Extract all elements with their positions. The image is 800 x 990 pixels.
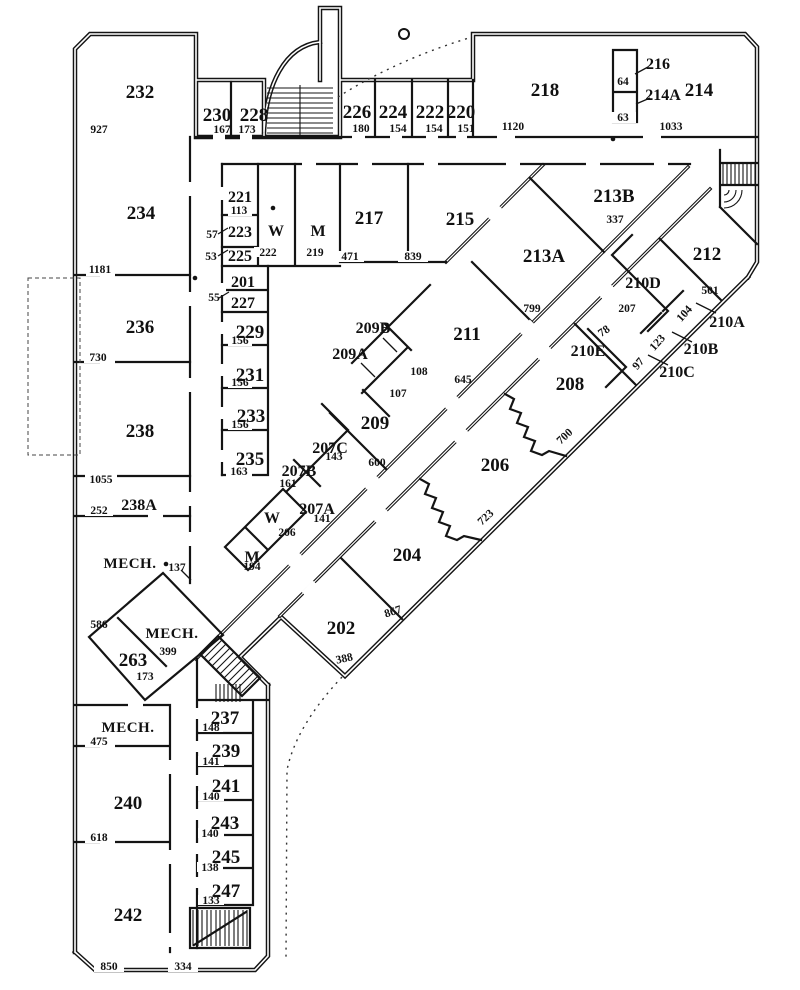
dim-label-645: 645 — [454, 374, 472, 386]
floor-plan-drawing: 232 230 228 226 224 222 220 218 216 214A… — [0, 0, 800, 990]
room-label-230: 230 — [203, 105, 232, 126]
room-label-210D: 210D — [625, 275, 661, 292]
outer-walls — [75, 8, 757, 970]
dim-label-207: 207 — [618, 303, 636, 315]
dotted-walk-bottom — [286, 677, 342, 958]
room-label-mech-3: MECH. — [102, 720, 155, 736]
dim-label-388: 388 — [335, 651, 355, 666]
room-label-242: 242 — [114, 905, 143, 926]
room-label-238: 238 — [126, 421, 155, 442]
room-label-234: 234 — [127, 203, 156, 224]
room-label-201: 201 — [231, 274, 255, 291]
dim-label-156c: 156 — [231, 419, 249, 431]
dim-label-1033: 1033 — [660, 121, 683, 133]
room-label-210E: 210E — [571, 343, 606, 360]
door-openings — [84, 112, 668, 972]
dim-label-108: 108 — [410, 366, 428, 378]
room-label-220: 220 — [447, 102, 476, 123]
zigzag-wall-206-204 — [420, 479, 481, 540]
dim-label-927: 927 — [90, 124, 108, 136]
dim-label-1120: 1120 — [502, 121, 525, 133]
stair-top-center — [267, 85, 333, 135]
room-label-213A: 213A — [523, 246, 566, 267]
floor-plan-page: 232 230 228 226 224 222 220 218 216 214A… — [0, 0, 800, 990]
dim-label-1055: 1055 — [90, 474, 113, 486]
dim-label-180: 180 — [352, 123, 370, 135]
room-label-m-top: M — [310, 223, 325, 240]
dim-label-107: 107 — [389, 388, 407, 400]
dim-label-156a: 156 — [231, 335, 249, 347]
dotted-walk-top — [338, 37, 472, 97]
room-label-210C: 210C — [659, 364, 695, 381]
dim-label-163: 163 — [230, 466, 248, 478]
room-label-263: 263 — [119, 650, 148, 671]
room-label-w-mid: W — [264, 510, 280, 527]
room-label-223: 223 — [228, 224, 252, 241]
dim-label-194: 194 — [243, 561, 261, 573]
roof-drain-circle — [399, 29, 409, 39]
room-label-208: 208 — [556, 374, 585, 395]
room-label-224: 224 — [379, 102, 408, 123]
dim-label-140b: 140 — [201, 828, 219, 840]
room-label-232: 232 — [126, 82, 155, 103]
column-dot — [611, 137, 616, 142]
column-dot — [193, 276, 198, 281]
dim-label-123: 123 — [648, 332, 669, 353]
dim-label-97: 97 — [630, 356, 647, 373]
dim-label-723: 723 — [476, 507, 497, 528]
dim-label-64: 64 — [617, 76, 629, 88]
dim-label-78: 78 — [596, 323, 613, 340]
dim-label-141b: 141 — [313, 513, 331, 525]
dim-label-138: 138 — [201, 862, 219, 874]
dimension-labels: 927 167 173 180 154 154 151 1120 64 63 1… — [89, 76, 719, 973]
room-label-227: 227 — [231, 295, 255, 312]
dim-label-140a: 140 — [202, 791, 220, 803]
dim-label-700: 700 — [555, 426, 576, 447]
dim-label-206: 206 — [278, 527, 296, 539]
dim-label-156b: 156 — [231, 377, 249, 389]
room-label-mech-1: MECH. — [104, 556, 157, 572]
dim-label-53: 53 — [205, 251, 217, 263]
dim-label-600: 600 — [368, 457, 386, 469]
dim-label-219: 219 — [306, 247, 324, 259]
room-label-215: 215 — [446, 209, 475, 230]
room-label-210B: 210B — [684, 341, 719, 358]
dim-label-337: 337 — [606, 214, 624, 226]
room-label-225: 225 — [228, 248, 252, 265]
dim-label-173a: 173 — [238, 124, 256, 136]
room-label-204: 204 — [393, 545, 422, 566]
dim-label-167: 167 — [213, 124, 231, 136]
room-label-212: 212 — [693, 244, 722, 265]
dim-label-839: 839 — [404, 251, 422, 263]
dim-label-730: 730 — [89, 352, 107, 364]
column-dot — [271, 206, 276, 211]
dim-label-154b: 154 — [425, 123, 443, 135]
dim-label-222: 222 — [259, 247, 277, 259]
room-label-221: 221 — [228, 189, 252, 206]
dim-label-501: 501 — [701, 285, 719, 297]
dim-label-334: 334 — [174, 961, 192, 973]
room-label-206: 206 — [481, 455, 510, 476]
dim-label-55: 55 — [208, 292, 220, 304]
room-label-209A: 209A — [332, 346, 368, 363]
room-label-214A: 214A — [645, 87, 681, 104]
zigzag-wall-208-206 — [505, 394, 566, 456]
dashed-canopy — [28, 278, 80, 455]
room-label-mech-2: MECH. — [146, 626, 199, 642]
dim-label-57: 57 — [206, 229, 218, 241]
room-label-216: 216 — [646, 56, 670, 73]
room-label-213B: 213B — [593, 186, 635, 207]
room-label-209B: 209B — [356, 320, 391, 337]
dim-label-113: 113 — [231, 205, 248, 217]
dim-label-161: 161 — [279, 478, 297, 490]
dim-label-154a: 154 — [389, 123, 407, 135]
room-label-226: 226 — [343, 102, 372, 123]
dim-label-148: 148 — [202, 722, 220, 734]
dim-label-133: 133 — [202, 895, 220, 907]
dim-label-151: 151 — [457, 123, 475, 135]
interior-walls — [75, 50, 757, 952]
dim-label-63: 63 — [617, 112, 629, 124]
dim-label-141a: 141 — [202, 756, 220, 768]
dim-label-137: 137 — [168, 562, 186, 574]
dim-label-1181: 1181 — [89, 264, 112, 276]
dim-label-850: 850 — [100, 961, 118, 973]
dim-label-471: 471 — [341, 251, 359, 263]
dim-label-475: 475 — [90, 736, 108, 748]
room-label-209: 209 — [361, 413, 390, 434]
dim-label-104: 104 — [675, 303, 696, 324]
dim-label-618: 618 — [90, 832, 108, 844]
room-label-238A: 238A — [121, 497, 157, 514]
room-label-218: 218 — [531, 80, 560, 101]
room-label-214: 214 — [685, 80, 714, 101]
dim-label-252: 252 — [90, 505, 108, 517]
room-label-211: 211 — [453, 324, 480, 345]
room-label-w-top: W — [268, 223, 284, 240]
dim-label-143: 143 — [325, 451, 343, 463]
dim-label-586: 586 — [90, 619, 108, 631]
room-label-217: 217 — [355, 208, 384, 229]
dim-label-173b: 173 — [136, 671, 154, 683]
dim-label-399: 399 — [159, 646, 177, 658]
room-label-236: 236 — [126, 317, 155, 338]
room-label-222: 222 — [416, 102, 445, 123]
room-label-210A: 210A — [709, 314, 745, 331]
dim-label-799: 799 — [523, 303, 541, 315]
room-label-202: 202 — [327, 618, 356, 639]
room-label-240: 240 — [114, 793, 143, 814]
room-label-228: 228 — [240, 105, 269, 126]
